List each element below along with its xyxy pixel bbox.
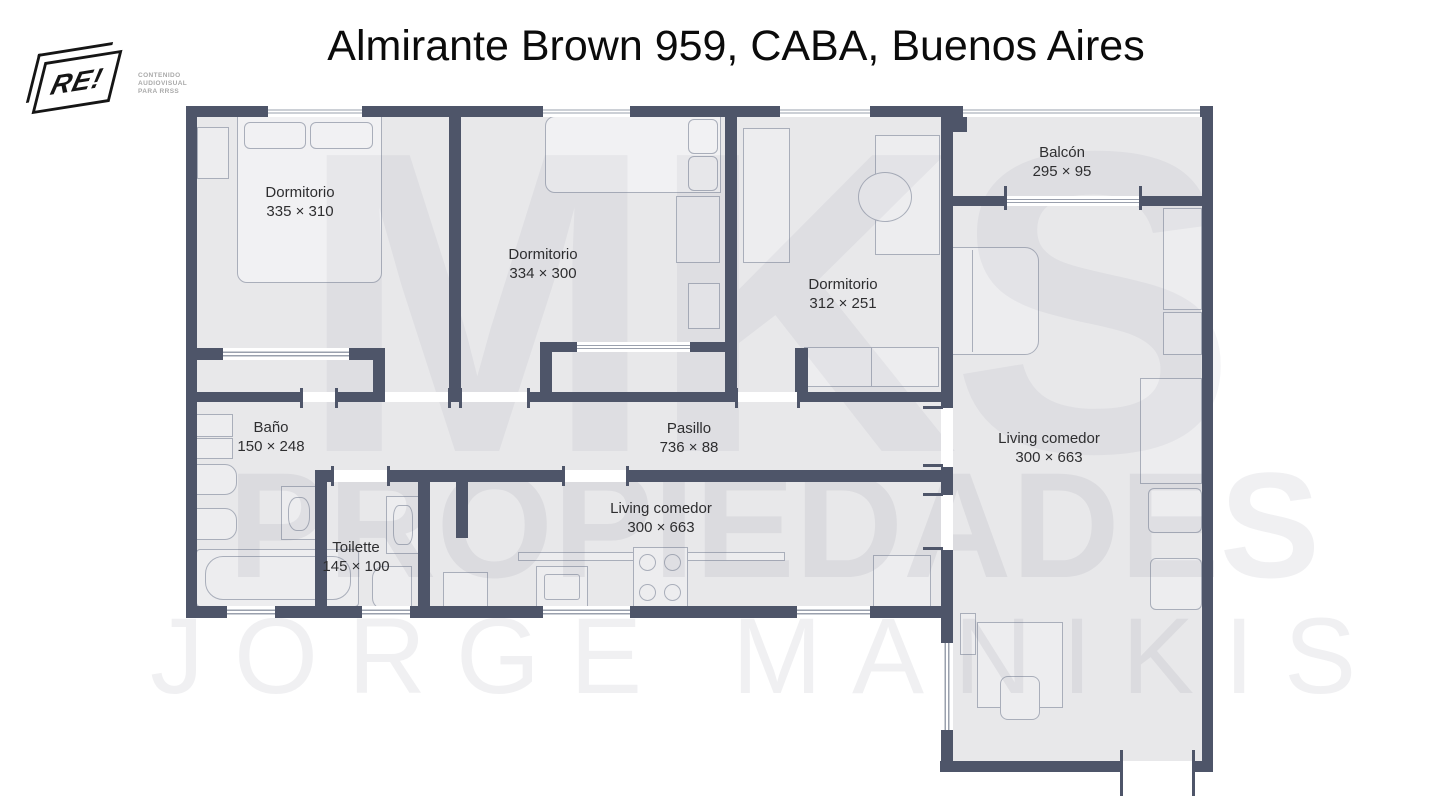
door-opening-kitchen-living — [941, 495, 953, 550]
sofa-backrest — [972, 250, 973, 352]
room-label-living-comedor: Living comedor 300 × 663 — [998, 429, 1100, 467]
pillow — [688, 119, 718, 154]
window — [780, 106, 870, 117]
cabinet — [1163, 312, 1202, 355]
stove — [633, 547, 688, 609]
door-opening-bedroom3 — [737, 392, 798, 402]
window — [227, 606, 275, 618]
dresser-divider — [871, 348, 872, 386]
room-name: Living comedor — [610, 499, 712, 518]
door-jamb-tick — [735, 388, 738, 408]
kitchen-sink — [536, 566, 588, 608]
door-jamb-tick — [923, 493, 943, 496]
room-dims: 150 × 248 — [237, 437, 304, 456]
door-jamb-tick — [923, 464, 943, 467]
pillow — [688, 156, 718, 191]
logo-tagline: CONTENIDO AUDIOVISUAL PARA RRSS — [138, 72, 187, 96]
page-title: Almirante Brown 959, CABA, Buenos Aires — [327, 22, 1144, 71]
stove-burner — [664, 584, 681, 601]
window — [543, 606, 630, 618]
bidet — [196, 508, 237, 540]
door-opening-entrance — [1122, 761, 1195, 772]
room-name: Baño — [237, 418, 304, 437]
door-opening-toilette — [333, 470, 388, 482]
sink-basin — [544, 574, 580, 600]
door-jamb-tick — [1139, 186, 1142, 210]
room-name: Pasillo — [660, 419, 719, 438]
closet-front — [223, 348, 349, 360]
toilette-sink — [386, 496, 420, 554]
bathroom-vanity — [281, 486, 317, 540]
room-name: Balcón — [1033, 143, 1092, 162]
room-dims: 334 × 300 — [508, 264, 577, 283]
door-jamb-tick — [1192, 750, 1195, 796]
door-jamb-tick — [300, 388, 303, 408]
balcony-pillar — [953, 116, 967, 132]
wall-toilette-right — [418, 470, 430, 606]
dining-chair — [1150, 558, 1202, 610]
wall-hall-top — [186, 392, 302, 402]
door-jamb-tick — [331, 466, 334, 486]
room-label-pasillo: Pasillo 736 × 88 — [660, 419, 719, 457]
toilet — [196, 464, 237, 495]
door-jamb-tick — [797, 388, 800, 408]
balcony-glazing — [963, 106, 1200, 117]
dresser — [804, 347, 939, 387]
stove-burner — [639, 584, 656, 601]
window — [268, 106, 362, 117]
agency-logo: RE! CONTENIDO AUDIOVISUAL PARA RRSS — [28, 38, 188, 120]
room-label-toilette: Toilette 145 × 100 — [322, 538, 389, 576]
door-jamb-tick — [1004, 186, 1007, 210]
room-name: Dormitorio — [265, 183, 334, 202]
door-opening-bano — [302, 392, 336, 402]
door-jamb-tick — [459, 388, 462, 408]
sink-basin — [393, 505, 413, 545]
wall-hall-bottom — [388, 470, 564, 482]
dining-chair — [1148, 488, 1202, 533]
room-label-dormitorio-3: Dormitorio 312 × 251 — [808, 275, 877, 313]
sliding-door — [1007, 196, 1142, 206]
bookshelf — [960, 613, 976, 655]
cabinet — [688, 283, 720, 329]
room-label-living-comedor-cocina: Living comedor 300 × 663 — [610, 499, 712, 537]
room-dims: 300 × 663 — [998, 448, 1100, 467]
logo-tagline-line: AUDIOVISUAL — [138, 80, 187, 88]
wardrobe — [743, 128, 790, 263]
logo-text: RE! — [47, 62, 106, 102]
sofa — [951, 247, 1039, 355]
pillow — [310, 122, 373, 149]
door-jamb-tick — [562, 466, 565, 486]
door-opening-bedroom2 — [461, 392, 528, 402]
door-jamb-tick — [923, 406, 943, 409]
window — [941, 643, 953, 730]
room-name: Dormitorio — [808, 275, 877, 294]
door-opening-kitchen — [564, 470, 627, 482]
room-name: Toilette — [322, 538, 389, 557]
sink-basin — [288, 497, 310, 531]
tv-unit — [1163, 208, 1202, 310]
washing-machine — [192, 414, 233, 437]
dining-table — [1140, 378, 1202, 484]
door-jamb-tick — [923, 547, 943, 550]
wall-exterior-right — [1202, 106, 1213, 772]
room-dims: 736 × 88 — [660, 438, 719, 457]
pillow — [244, 122, 306, 149]
room-dims: 335 × 310 — [265, 202, 334, 221]
room-label-dormitorio-2: Dormitorio 334 × 300 — [508, 245, 577, 283]
logo-tagline-line: PARA RRSS — [138, 88, 187, 96]
window — [543, 106, 630, 117]
door-jamb-tick — [448, 388, 451, 408]
room-name: Living comedor — [998, 429, 1100, 448]
desk-chair — [858, 172, 912, 222]
door-jamb-tick — [387, 466, 390, 486]
window — [797, 606, 870, 618]
door-jamb-tick — [335, 388, 338, 408]
room-label-dormitorio-1: Dormitorio 335 × 310 — [265, 183, 334, 221]
cabinet — [676, 196, 720, 263]
room-dims: 145 × 100 — [322, 557, 389, 576]
wall-bedroom1-bedroom2 — [449, 116, 461, 402]
room-dims: 300 × 663 — [610, 518, 712, 537]
door-jamb-tick — [1120, 750, 1123, 796]
stove-burner — [664, 554, 681, 571]
stove-burner — [639, 554, 656, 571]
wall-hall-bottom — [627, 470, 941, 482]
door-jamb-tick — [527, 388, 530, 408]
logo-tagline-line: CONTENIDO — [138, 72, 187, 80]
door-jamb-tick — [626, 466, 629, 486]
fridge — [873, 555, 931, 609]
door-opening-bedroom1 — [385, 392, 449, 402]
wall-hall-top — [528, 392, 737, 402]
room-dims: 312 × 251 — [808, 294, 877, 313]
room-dims: 295 × 95 — [1033, 162, 1092, 181]
wall-hall-top — [798, 392, 941, 402]
closet-front — [577, 342, 690, 352]
door-opening-pasillo-living — [941, 408, 953, 467]
room-label-bano: Baño 150 × 248 — [237, 418, 304, 456]
window — [362, 606, 410, 618]
wall-stub-kitchen — [456, 482, 468, 538]
wall-hall-top — [336, 392, 385, 402]
room-name: Dormitorio — [508, 245, 577, 264]
closet — [197, 127, 229, 179]
washing-machine — [192, 438, 233, 459]
dishwasher — [443, 572, 488, 608]
desk-chair — [1000, 676, 1040, 720]
wall-exterior-left — [186, 106, 197, 618]
room-label-balcon: Balcón 295 × 95 — [1033, 143, 1092, 181]
